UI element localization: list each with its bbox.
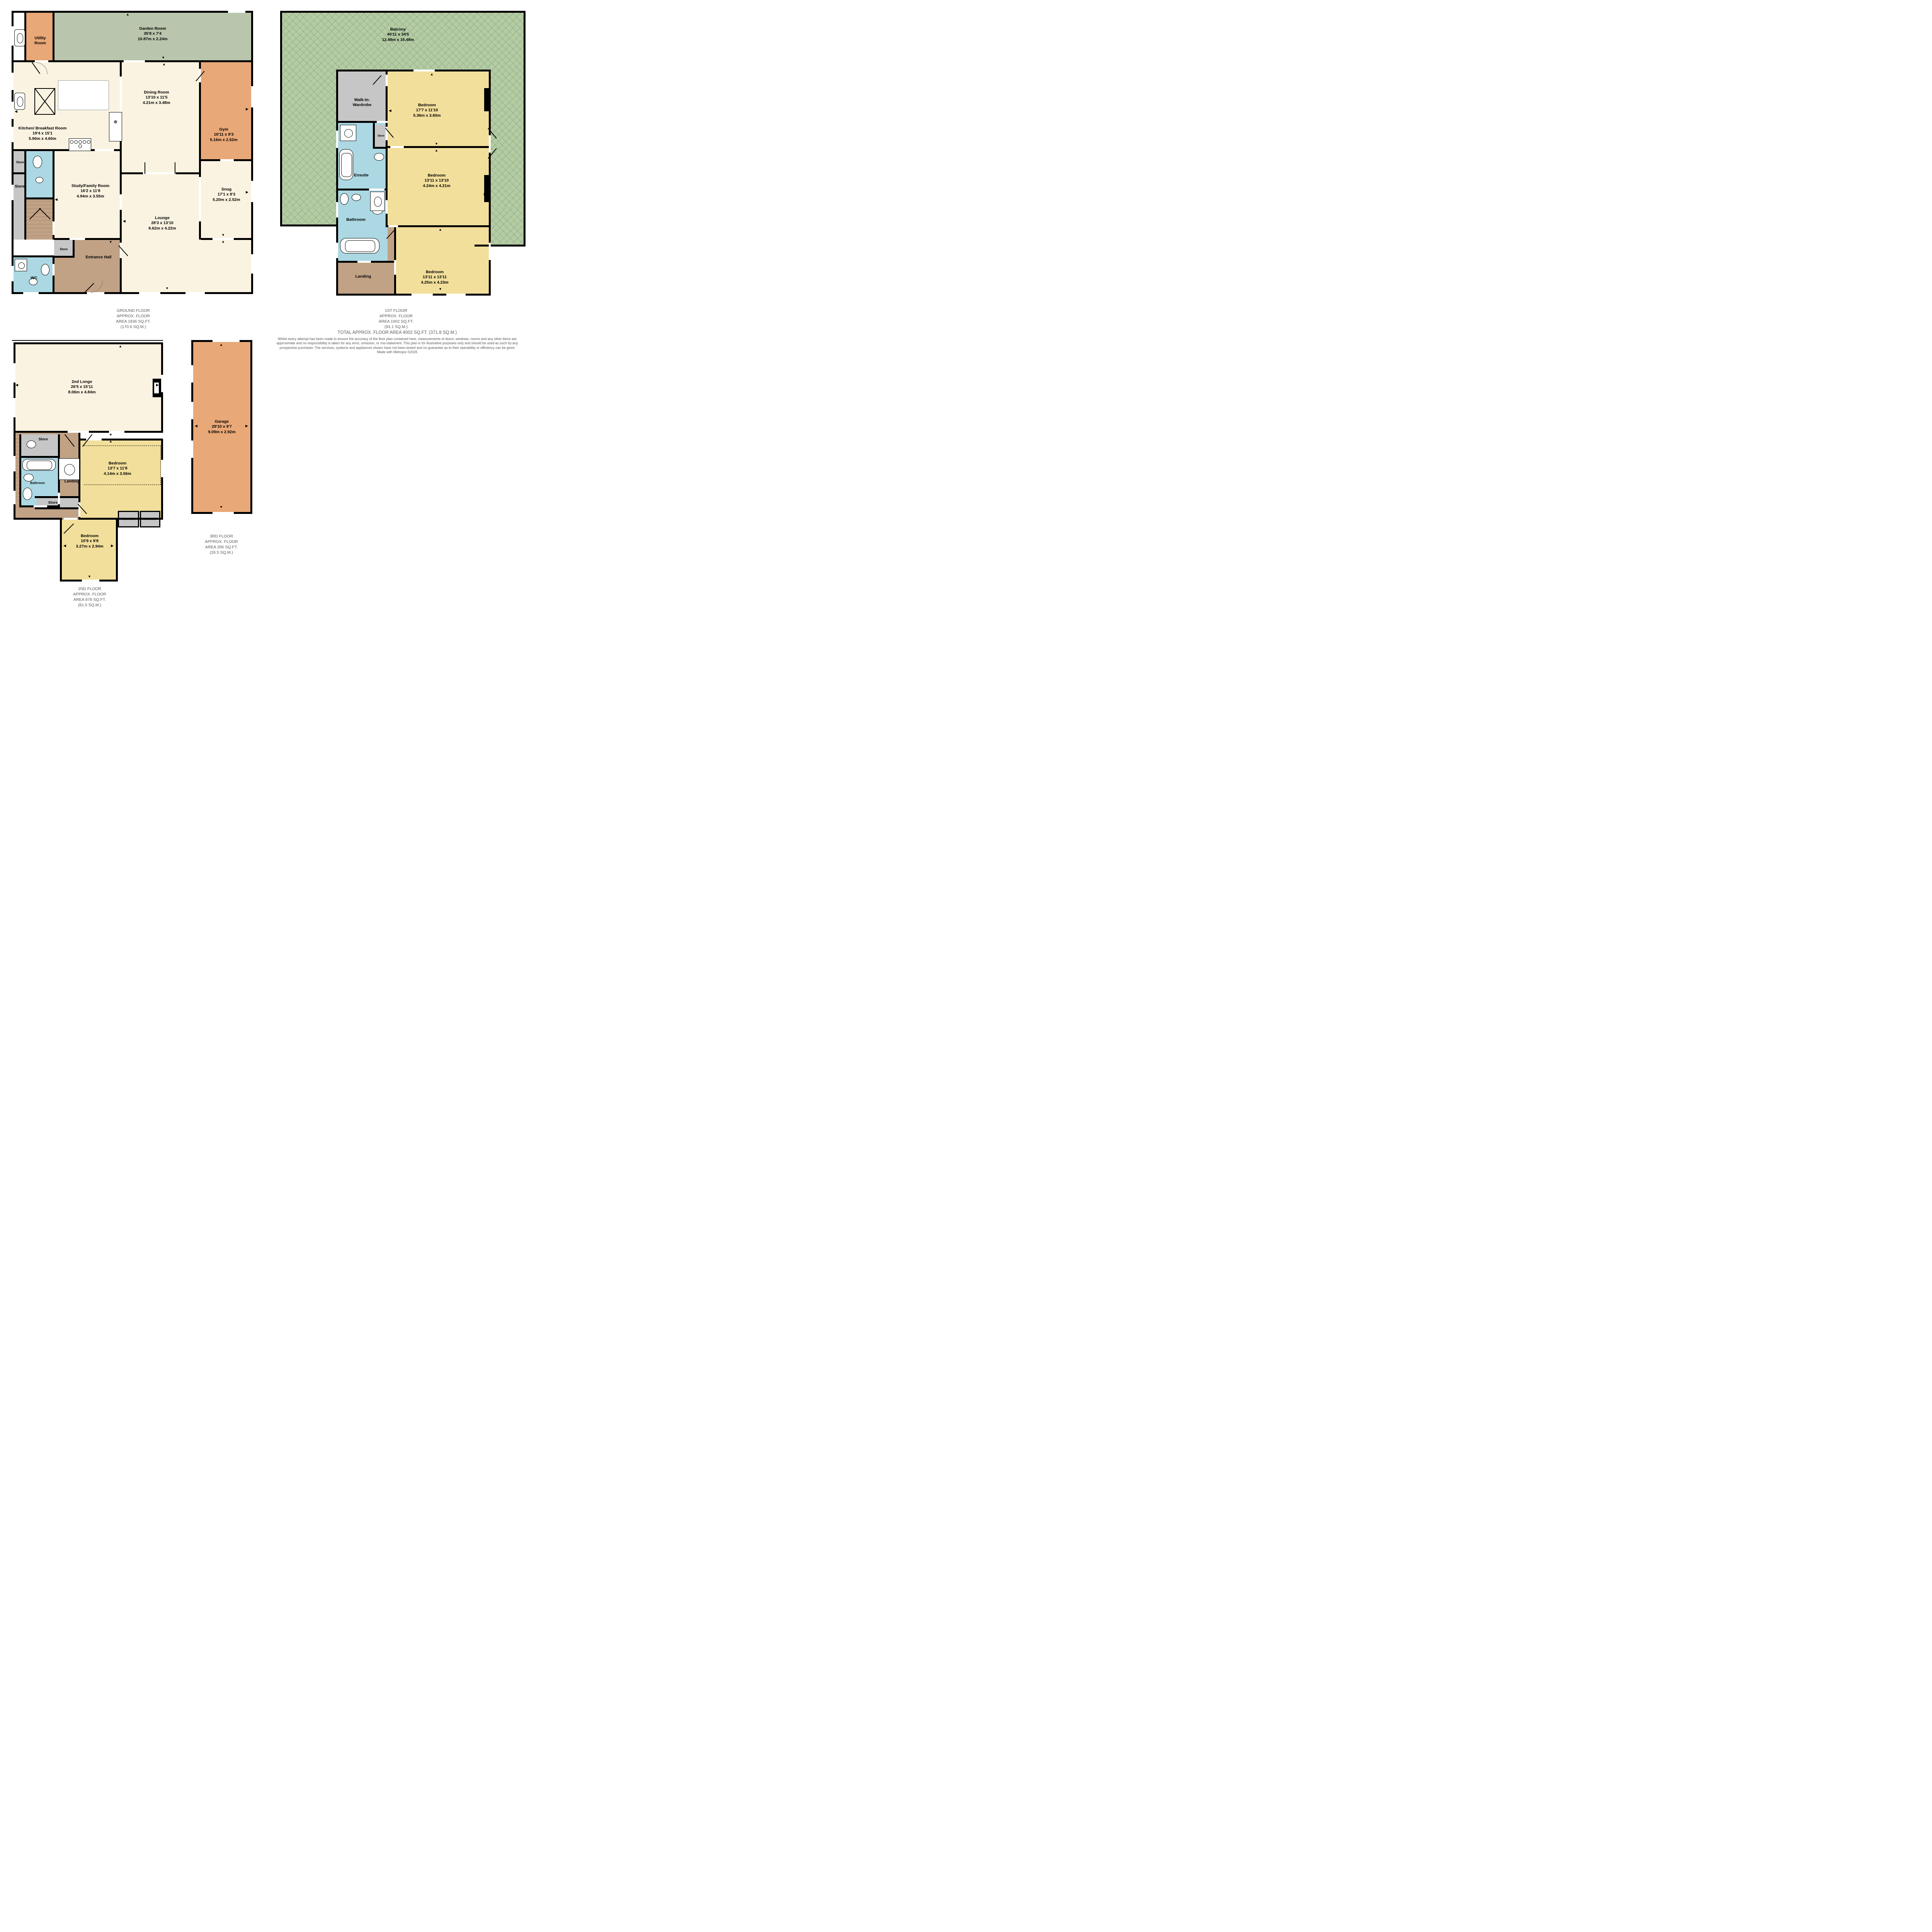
- wall: [489, 70, 491, 296]
- toilet-icon: [23, 488, 32, 500]
- window: [336, 131, 338, 148]
- door-leaf: [175, 162, 175, 174]
- wall: [14, 255, 54, 257]
- wall: [14, 433, 15, 520]
- window: [82, 580, 99, 582]
- room-dims-metric: 5.36m x 3.60m: [413, 113, 440, 118]
- sink-icon: [14, 93, 25, 110]
- wall: [12, 292, 253, 294]
- wall: [251, 11, 253, 294]
- wall: [12, 11, 253, 13]
- room-dims-imperial: 19'4 x 15'1: [17, 131, 69, 136]
- room-name: Dining Room: [143, 90, 170, 95]
- room-name: Snug: [213, 187, 240, 192]
- third-floor-caption: 3RD FLOOR APPROX. FLOOR AREA 286 SQ.FT. …: [205, 534, 238, 555]
- window: [446, 294, 466, 296]
- room-label: Walk-In-Wardrobe: [347, 98, 377, 108]
- room-dims-metric: 4.21m x 3.48m: [143, 100, 170, 105]
- door-opening: [120, 194, 122, 210]
- caption-line: (81.5 SQ.M.): [73, 603, 106, 608]
- second-floor-plan: ▲ ◀ ▶ ▼ ▲ ◀ ▶ ▼ 2nd Longe 26'5 x 15'11 8…: [10, 340, 165, 618]
- room-name: Bedroom: [76, 534, 103, 539]
- room-dims-imperial: 26'5 x 15'11: [68, 384, 95, 389]
- toilet-icon: [340, 193, 349, 205]
- wall: [35, 496, 80, 498]
- caption-line: APPROX. FLOOR: [116, 314, 151, 319]
- wall: [14, 342, 163, 344]
- room-dims-metric: 9.09m x 2.92m: [208, 430, 235, 435]
- arrow-icon: ▼: [219, 505, 223, 509]
- chimney-breast: [484, 175, 489, 202]
- room-label: WC: [31, 276, 37, 281]
- wall: [53, 11, 54, 62]
- window: [251, 181, 253, 202]
- room-dims-metric: 8.06m x 4.84m: [68, 390, 95, 395]
- room-name: Bedroom: [104, 461, 131, 466]
- window: [12, 127, 14, 142]
- room-label: Dining Room 13'10 x 11'5 4.21m x 3.48m: [143, 90, 170, 105]
- room-name: Garage: [208, 419, 235, 424]
- first-floor-caption: 1ST FLOOR APPROX. FLOOR AREA 1002 SQ.FT.…: [379, 308, 413, 330]
- caption-line: 3RD FLOOR: [205, 534, 238, 539]
- room-name: Study/Family Room: [71, 184, 109, 189]
- wall: [24, 151, 26, 240]
- arrow-icon: ▶: [246, 107, 248, 111]
- window: [191, 365, 193, 383]
- door-opening: [53, 221, 54, 235]
- room-dims-imperial: 13'7 x 11'8: [104, 466, 131, 471]
- arrow-icon: ▼: [221, 233, 225, 237]
- window: [161, 460, 163, 477]
- arrow-icon: ◀: [15, 383, 18, 387]
- kitchen-island: [58, 80, 109, 110]
- room-label: Landing: [65, 480, 80, 485]
- room-label: Store: [378, 135, 384, 138]
- wall: [373, 147, 388, 149]
- room-name: WC: [31, 276, 37, 281]
- door-opening: [58, 493, 60, 504]
- footer-block: TOTAL APPROX. FLOOR AREA 4002 SQ.FT. (37…: [272, 330, 523, 355]
- window: [14, 491, 15, 504]
- door-opening: [120, 77, 122, 115]
- door-opening: [143, 172, 176, 174]
- arrow-icon: ◀: [55, 198, 58, 201]
- room-dims-metric: 3.27m x 2.94m: [76, 544, 103, 549]
- room-label: Store: [60, 248, 68, 251]
- room-label: Store: [48, 501, 58, 505]
- door-opening: [199, 177, 201, 221]
- room-label: Garage 29'10 x 9'7 9.09m x 2.92m: [208, 419, 235, 435]
- door-opening: [64, 518, 77, 520]
- caption-line: 2ND FLOOR: [73, 587, 106, 592]
- room-label: Lounge 28'3 x 13'10 8.62m x 4.22m: [148, 216, 176, 231]
- shower-icon: [340, 125, 356, 141]
- arrow-icon: ◀: [123, 219, 126, 223]
- room-name: Walk-In-Wardrobe: [347, 98, 377, 108]
- arrow-icon: ▶: [484, 192, 486, 196]
- arrow-icon: ▶: [111, 544, 114, 548]
- caption-line: AREA 1836 SQ.FT.: [116, 319, 151, 325]
- room-dims-metric: 4.14m x 3.56m: [104, 471, 131, 476]
- shower-icon: [370, 192, 385, 211]
- bath-icon: [339, 149, 353, 180]
- door-opening: [369, 189, 384, 190]
- arrow-icon: ▼: [165, 287, 169, 290]
- window: [191, 440, 193, 458]
- room-label: Garden Room 35'8 x 7'4 10.87m x 2.24m: [138, 26, 167, 42]
- room-label: Kitchen/ Breakfast Room 19'4 x 15'1 5.90…: [17, 126, 69, 141]
- room-dims-imperial: 29'10 x 9'7: [208, 424, 235, 429]
- arrow-icon: ◀: [389, 109, 391, 112]
- room-dims-imperial: 16'11 x 8'3: [210, 132, 237, 137]
- shower-icon: [59, 458, 80, 480]
- window: [139, 292, 160, 294]
- caption-line: 1ST FLOOR: [379, 308, 413, 314]
- arrow-icon: ▲: [221, 240, 225, 243]
- room-dims-metric: 8.62m x 4.22m: [148, 226, 176, 231]
- shower-icon: [15, 259, 27, 271]
- sink-icon: [27, 440, 36, 448]
- wall: [12, 11, 14, 294]
- door-opening: [357, 261, 371, 263]
- window: [12, 73, 14, 90]
- room-name: Landing: [65, 480, 80, 485]
- room-dims-metric: 5.90m x 4.60m: [17, 136, 69, 141]
- bath-icon: [22, 459, 56, 471]
- toilet-icon: [41, 264, 49, 276]
- window: [161, 375, 163, 392]
- balcony-door-opening: [489, 135, 491, 153]
- room-name: Balcony: [382, 27, 414, 32]
- arrow-icon: ▲: [162, 63, 166, 66]
- sink-icon: [14, 29, 25, 46]
- window: [23, 292, 39, 294]
- room-name: 2nd Longe: [68, 379, 95, 384]
- window: [14, 456, 15, 471]
- door-opening: [53, 264, 54, 276]
- room-dims-imperial: 16'2 x 11'8: [71, 189, 109, 194]
- room-label: Bathroom: [346, 217, 366, 222]
- wall: [250, 340, 252, 514]
- room-dims-imperial: 13'10 x 11'5: [143, 95, 170, 100]
- arrow-icon: ▶: [245, 424, 248, 428]
- room-label: Ensuite: [354, 173, 369, 178]
- room-name: Ensuite: [354, 173, 369, 178]
- sink-icon: [374, 153, 384, 161]
- toilet-icon: [33, 156, 42, 168]
- balcony: [281, 208, 336, 225]
- wall: [54, 256, 75, 258]
- caption-line: (170.6 SQ.M.): [116, 325, 151, 330]
- room-label: Balcony 40'11 x 34'5 12.48m x 10.48m: [382, 27, 414, 43]
- room-dims-metric: 12.48m x 10.48m: [382, 37, 414, 43]
- arrow-icon: ▼: [88, 575, 91, 578]
- arrow-icon: ▼: [162, 56, 165, 60]
- wall: [73, 240, 75, 257]
- room-label: Store: [15, 185, 25, 189]
- wall: [14, 342, 15, 433]
- window: [251, 86, 253, 107]
- room-dims-imperial: 13'11 x 13'10: [423, 178, 450, 183]
- wall: [60, 518, 62, 582]
- first-floor-plan: ▲ ◀ ▼ ▲ ▲ ▼ ▶ Balcony 40'11 x 34'5 12.48…: [280, 11, 526, 305]
- room-name: Entrance Hall: [85, 255, 111, 260]
- sink-icon: [352, 194, 361, 201]
- wall: [161, 439, 163, 520]
- room-name: Kitchen/ Breakfast Room: [17, 126, 69, 131]
- wall: [474, 245, 526, 247]
- wall: [26, 197, 54, 199]
- window: [251, 254, 253, 274]
- room-gym: [201, 62, 251, 161]
- caption-line: AREA 878 SQ.FT.: [73, 597, 106, 603]
- sink-icon: [24, 474, 34, 481]
- arrow-icon: ▲: [430, 73, 434, 76]
- room-dims-metric: 4.94m x 3.55m: [71, 194, 109, 199]
- window: [412, 294, 433, 296]
- door-opening: [68, 431, 89, 433]
- door-opening: [377, 121, 388, 123]
- room-dims-imperial: 17'1 x 8'3: [213, 192, 240, 197]
- wall: [373, 123, 375, 148]
- wall: [21, 456, 58, 458]
- room-name: Bedroom: [421, 270, 448, 275]
- room-label: Gym 16'11 x 8'3 5.16m x 2.52m: [210, 127, 237, 143]
- floorplan-page: ❄ ▲ ▼ ▲ ◀ ▶ ▶ ◀ ▼ ▲ ▼ ◀ ▼ Garden Room: [0, 0, 547, 622]
- wall: [35, 507, 80, 509]
- disclaimer-text: Whilst every attempt has been made to en…: [272, 337, 523, 350]
- window: [489, 243, 491, 260]
- window: [12, 26, 14, 46]
- room-label: Bedroom 10'9 x 9'8 3.27m x 2.94m: [76, 534, 103, 549]
- room-dims-imperial: 28'3 x 13'10: [148, 221, 176, 226]
- room-label: Wardrobe: [143, 517, 157, 521]
- window: [213, 512, 234, 514]
- door-opening: [390, 146, 404, 148]
- chimney-breast: [484, 88, 489, 111]
- room-label: Bedroom 13'11 x 13'10 4.24m x 4.21m: [423, 173, 450, 189]
- room-name: Landing: [355, 274, 371, 279]
- sink-icon: [36, 177, 43, 183]
- room-dining: [122, 62, 201, 174]
- arrow-icon: ▲: [439, 228, 442, 231]
- window: [185, 292, 205, 294]
- room-dims-imperial: 17'7 x 11'10: [413, 108, 440, 113]
- caption-line: APPROX. FLOOR: [205, 539, 238, 545]
- door-opening: [34, 505, 47, 507]
- window: [336, 202, 338, 218]
- room-dims-imperial: 35'8 x 7'4: [138, 31, 167, 36]
- window: [413, 70, 435, 71]
- wall: [388, 225, 489, 227]
- wall: [19, 434, 21, 507]
- room-label: 2nd Longe 26'5 x 15'11 8.06m x 4.84m: [68, 379, 95, 395]
- room-name: Garden Room: [138, 26, 167, 31]
- arrow-icon: ▲: [109, 440, 112, 443]
- arrow-icon: ▲: [119, 345, 122, 348]
- room-label: Entrance Hall: [85, 255, 111, 260]
- window: [191, 402, 193, 419]
- arrow-icon: ▲: [435, 149, 438, 152]
- door-opening: [388, 225, 398, 227]
- room-label: Study/Family Room 16'2 x 11'8 4.94m x 3.…: [71, 184, 109, 199]
- arrow-icon: ▼: [435, 142, 438, 146]
- arrow-icon: ▶: [156, 383, 159, 387]
- balcony-rail: [12, 340, 163, 341]
- room-name: Bedroom: [413, 103, 440, 108]
- room-name: Utility Room: [30, 36, 50, 46]
- room-label: Bedroom 13'11 x 13'11 4.25m x 4.23m: [421, 270, 448, 285]
- room-name: Gym: [210, 127, 237, 132]
- arrow-icon: ▼: [109, 433, 112, 437]
- room-label: Snug 17'1 x 8'3 5.20m x 2.52m: [213, 187, 240, 202]
- wall: [524, 11, 526, 247]
- wall: [14, 172, 26, 174]
- hob-icon: [69, 138, 91, 151]
- room-label: Store: [16, 161, 24, 164]
- arrow-icon: ▲: [219, 343, 223, 347]
- ground-floor-plan: ❄ ▲ ▼ ▲ ◀ ▶ ▶ ◀ ▼ ▲ ▼ ◀ ▼ Garden Room: [12, 11, 253, 299]
- room-dims-metric: 5.20m x 2.52m: [213, 197, 240, 202]
- door-opening: [95, 149, 114, 151]
- arrow-icon: ◀: [195, 424, 197, 428]
- window: [336, 243, 338, 258]
- door-opening: [120, 243, 122, 258]
- room-dims-imperial: 13'11 x 13'11: [421, 275, 448, 280]
- door-leaf: [145, 162, 145, 174]
- ground-floor-caption: GROUND FLOOR APPROX. FLOOR AREA 1836 SQ.…: [116, 308, 151, 330]
- door-opening: [394, 260, 396, 275]
- wall: [58, 434, 60, 457]
- room-dims-metric: 4.24m x 4.21m: [423, 184, 450, 189]
- room-bedroom-2: [62, 520, 118, 582]
- wall: [280, 11, 526, 13]
- room-walk-in-wardrobe: [338, 71, 388, 123]
- wall: [280, 11, 282, 226]
- fridge-icon: ❄: [109, 112, 122, 141]
- caption-line: APPROX. FLOOR: [379, 314, 413, 319]
- door-opening: [386, 200, 388, 214]
- room-label: Utility Room: [30, 36, 50, 46]
- total-floor-area: TOTAL APPROX. FLOOR AREA 4002 SQ.FT. (37…: [272, 330, 523, 335]
- window: [228, 11, 245, 13]
- arrow-icon: ◀: [63, 544, 66, 548]
- bath-icon: [340, 238, 379, 253]
- arrow-icon: ◀: [15, 110, 17, 113]
- caption-line: AREA 286 SQ.FT.: [205, 545, 238, 550]
- room-dims-metric: 10.87m x 2.24m: [138, 37, 167, 42]
- second-floor-caption: 2ND FLOOR APPROX. FLOOR AREA 878 SQ.FT. …: [73, 587, 106, 608]
- door-opening: [124, 60, 145, 62]
- room-label: Bedroom 17'7 x 11'10 5.36m x 3.60m: [413, 103, 440, 118]
- room-dims-imperial: 10'9 x 9'8: [76, 539, 103, 544]
- window: [12, 266, 14, 281]
- arrow-icon: ▼: [109, 240, 112, 244]
- door-opening: [70, 238, 85, 240]
- metropix-credit: Made with Metropix ©2025: [272, 350, 523, 354]
- room-dims-metric: 5.16m x 2.52m: [210, 138, 237, 143]
- window: [12, 102, 14, 119]
- wall: [116, 518, 118, 582]
- room-name: Bathroom: [346, 217, 366, 222]
- room-dims-imperial: 40'11 x 34'5: [382, 32, 414, 37]
- window: [12, 185, 14, 200]
- caption-line: APPROX. FLOOR: [73, 592, 106, 597]
- room-name: Bedroom: [423, 173, 450, 178]
- caption-line: (93.1 SQ.M.): [379, 325, 413, 330]
- room-label: Store: [39, 437, 48, 442]
- room-label: Landing: [355, 274, 371, 279]
- skylight-icon: [34, 88, 55, 115]
- caption-line: AREA 1002 SQ.FT.: [379, 319, 413, 325]
- arrow-icon: ▲: [126, 13, 129, 16]
- room-label: Wardrobe: [122, 517, 135, 521]
- window: [14, 398, 15, 417]
- door-opening: [220, 159, 234, 161]
- arrow-icon: ▼: [439, 287, 442, 291]
- front-door-opening: [87, 292, 104, 294]
- wall: [14, 518, 62, 520]
- wall: [280, 224, 337, 226]
- caption-line: GROUND FLOOR: [116, 308, 151, 314]
- door-opening: [386, 75, 388, 86]
- arrow-icon: ▶: [246, 190, 248, 194]
- caption-line: (26.5 SQ.M.): [205, 550, 238, 556]
- room-name: Lounge: [148, 216, 176, 221]
- window: [14, 363, 15, 383]
- room-dims-metric: 4.25m x 4.23m: [421, 280, 448, 285]
- room-label: Bedroom 13'7 x 11'8 4.14m x 3.56m: [104, 461, 131, 476]
- garage-door-opening: [213, 340, 240, 342]
- room-label: Bathroom: [30, 481, 45, 485]
